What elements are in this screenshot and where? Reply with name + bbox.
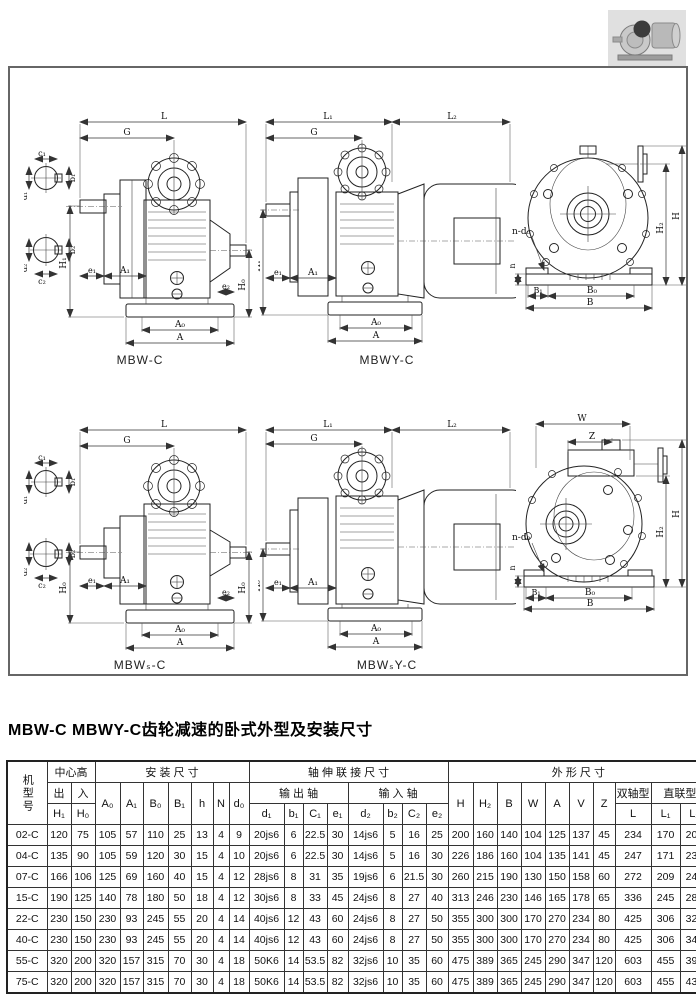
table-cell: 300 (497, 909, 521, 930)
table-cell: 15-C (7, 888, 47, 909)
table-cell: 455 (651, 972, 680, 994)
table-cell: 15 (191, 867, 213, 888)
table-cell: 260 (448, 867, 473, 888)
table-cell: 320 (47, 972, 71, 994)
table-cell: 340 (680, 930, 696, 951)
table-cell: 178 (569, 888, 593, 909)
table-cell: 21.5 (402, 867, 426, 888)
col-d2: d₂ (348, 804, 383, 825)
dim-label-G: G (310, 128, 317, 138)
table-cell: 290 (545, 951, 569, 972)
col-out: 出 (47, 783, 71, 804)
table-cell: 30 (191, 951, 213, 972)
colgroup-outline: 外 形 尺 寸 (448, 761, 696, 783)
table-cell: 230 (497, 888, 521, 909)
table-cell: 140 (95, 888, 120, 909)
table-cell: 10 (383, 972, 402, 994)
col-model: 机型号 (7, 761, 47, 825)
dimension-table: 机型号 中心高 安 装 尺 寸 轴 伸 联 接 尺 寸 外 形 尺 寸 出 入 … (6, 760, 696, 994)
diagram-mbwy-c: L₁ L₂ G H₁ e₁ A₁ A₀ (258, 108, 516, 367)
table-cell: 603 (615, 972, 651, 994)
table-cell: 475 (448, 972, 473, 994)
table-cell: 306 (651, 909, 680, 930)
mbwy-c-drawing: L₁ L₂ G H₁ e₁ A₁ A₀ (258, 108, 516, 351)
table-cell: 170 (651, 825, 680, 846)
table-cell: 105 (95, 825, 120, 846)
dim-label-H0-right: H₀ (238, 582, 248, 594)
col-b1: B₁ (168, 783, 191, 825)
table-cell: 320 (95, 972, 120, 994)
table-cell: 04-C (7, 846, 47, 867)
table-cell: 19js6 (348, 867, 383, 888)
table-cell: 125 (71, 888, 95, 909)
dim-label-H2: H₂ (656, 222, 666, 234)
shaft-section-input: c₂ b₂ d₂ (24, 538, 77, 590)
table-cell: 80 (593, 909, 615, 930)
table-cell: 313 (448, 888, 473, 909)
table-cell: 22.5 (303, 825, 327, 846)
table-cell: 50 (426, 930, 448, 951)
table-cell: 246 (473, 888, 497, 909)
table-cell: 02-C (7, 825, 47, 846)
table-cell: 78 (120, 888, 143, 909)
table-cell: 30 (327, 846, 348, 867)
table-cell: 6 (284, 846, 303, 867)
table-cell: 65 (593, 888, 615, 909)
mbw-c-dimensions: L G H₁ H₀ e₁ A₁ e₂ (59, 112, 252, 345)
table-cell: 75-C (7, 972, 47, 994)
table-cell: 69 (120, 867, 143, 888)
dim-label-B: B (587, 599, 594, 609)
table-cell: 20 (191, 909, 213, 930)
dim-label-d2: d₂ (24, 264, 29, 272)
table-cell: 8 (383, 909, 402, 930)
mbws-c-dimensions: L G H₀ H₀ e₁ A₁ e₂ (59, 420, 252, 650)
table-cell: 22.5 (303, 846, 327, 867)
table-cell: 30 (426, 867, 448, 888)
table-cell: 50K6 (249, 972, 284, 994)
mbwy-c-dimensions: L₁ L₂ G H₁ e₁ A₁ A₀ (258, 112, 510, 343)
table-cell: 6 (383, 867, 402, 888)
dim-label-B1: B₁ (531, 588, 540, 597)
dim-label-H2: H₂ (656, 526, 666, 538)
table-cell: 10 (229, 846, 249, 867)
dim-label-b2: b₂ (68, 550, 77, 558)
table-cell: 18 (229, 972, 249, 994)
table-cell: 20js6 (249, 846, 284, 867)
col-W: W (521, 783, 545, 825)
table-cell: 272 (615, 867, 651, 888)
table-header: 机型号 中心高 安 装 尺 寸 轴 伸 联 接 尺 寸 外 形 尺 寸 出 入 … (7, 761, 696, 825)
table-cell: 300 (473, 909, 497, 930)
table-cell: 336 (615, 888, 651, 909)
col-L1: L₁ (651, 804, 680, 825)
table-cell: 60 (426, 951, 448, 972)
dim-label-A0: A₀ (174, 625, 185, 635)
dim-label-B: B (587, 298, 594, 308)
col-in: 入 (71, 783, 95, 804)
table-cell: 425 (615, 930, 651, 951)
table-cell: 18 (229, 951, 249, 972)
table-cell: 320 (680, 909, 696, 930)
table-cell: 12 (284, 909, 303, 930)
dim-label-d1: d₁ (24, 192, 29, 200)
table-cell: 60 (426, 972, 448, 994)
table-cell: 125 (95, 867, 120, 888)
dim-label-L: L (161, 420, 167, 430)
table-cell: 27 (402, 930, 426, 951)
shaft-section-output: c₁ b₁ d₁ (24, 453, 77, 504)
table-cell: 8 (284, 867, 303, 888)
table-cell: 12 (284, 930, 303, 951)
dim-label-c2: c₂ (38, 277, 46, 286)
table-cell: 186 (473, 846, 497, 867)
table-cell: 245 (680, 867, 696, 888)
table-cell: 32js6 (348, 951, 383, 972)
table-cell: 16 (402, 846, 426, 867)
table-cell: 125 (545, 825, 569, 846)
table-row: 75-C320200320157315703041850K61453.58232… (7, 972, 696, 994)
table-cell: 07-C (7, 867, 47, 888)
front-view-drawing: H H₂ n-d₀ h B₁ B₀ B (510, 124, 694, 324)
caption-mbwy-c: MBWY-C (258, 353, 516, 367)
dim-label-e1: e₁ (88, 576, 96, 585)
table-cell: 60 (327, 930, 348, 951)
table-cell: 10 (383, 951, 402, 972)
dim-label-L2: L₂ (447, 112, 457, 122)
table-cell: 130 (521, 867, 545, 888)
table-cell: 24js6 (348, 888, 383, 909)
colgroup-output-shaft: 输 出 轴 (249, 783, 348, 804)
front-view-wz-drawing: W Z H H₂ n-d₀ h B₁ (510, 412, 694, 622)
table-cell: 13 (191, 825, 213, 846)
col-d1: d₁ (249, 804, 284, 825)
table-cell: 315 (143, 972, 168, 994)
table-cell: 4 (213, 825, 229, 846)
table-cell: 45 (593, 846, 615, 867)
dim-label-A: A (372, 637, 380, 647)
dim-label-L2: L₂ (447, 420, 457, 430)
table-cell: 45 (327, 888, 348, 909)
table-cell: 15 (191, 846, 213, 867)
table-cell: 157 (120, 972, 143, 994)
table-cell: 209 (651, 867, 680, 888)
col-c1: C₁ (303, 804, 327, 825)
table-cell: 395 (680, 951, 696, 972)
table-cell: 14js6 (348, 825, 383, 846)
table-cell: 425 (615, 909, 651, 930)
table-cell: 40 (426, 888, 448, 909)
table-cell: 14 (284, 951, 303, 972)
table-cell: 245 (143, 909, 168, 930)
table-cell: 93 (120, 909, 143, 930)
table-cell: 270 (545, 909, 569, 930)
dim-label-H: H (672, 212, 682, 220)
dim-label-H1: H₁ (59, 257, 69, 268)
col-Z: Z (593, 783, 615, 825)
table-cell: 4 (213, 909, 229, 930)
table-cell: 170 (521, 909, 545, 930)
dim-label-G: G (123, 436, 130, 446)
col-e2: e₂ (426, 804, 448, 825)
table-cell: 247 (615, 846, 651, 867)
col-c2: C₂ (402, 804, 426, 825)
mbwsy-c-drawing: L₁ L₂ G H₀ e₁ A₁ A₀ (258, 416, 516, 656)
dim-label-A0: A₀ (370, 624, 381, 634)
dim-label-c1: c₁ (38, 149, 46, 158)
dim-label-e1: e₁ (274, 578, 282, 587)
table-cell: 70 (168, 972, 191, 994)
table-cell: 50K6 (249, 951, 284, 972)
table-cell: 14js6 (348, 846, 383, 867)
table-cell: 245 (143, 930, 168, 951)
table-cell: 82 (327, 951, 348, 972)
table-cell: 80 (593, 930, 615, 951)
table-cell: 603 (615, 951, 651, 972)
table-cell: 14 (284, 972, 303, 994)
table-cell: 35 (327, 867, 348, 888)
table-cell: 171 (651, 846, 680, 867)
colgroup-center-height: 中心高 (47, 761, 95, 783)
table-cell: 200 (448, 825, 473, 846)
col-A: A (545, 783, 569, 825)
table-cell: 160 (143, 867, 168, 888)
diagram-front-view-bottom: W Z H H₂ n-d₀ h B₁ (510, 412, 694, 622)
table-cell: 4 (213, 930, 229, 951)
table-cell: 59 (120, 846, 143, 867)
table-cell: 320 (95, 951, 120, 972)
reducer-side-view (66, 154, 252, 318)
table-cell: 230 (47, 930, 71, 951)
table-cell: 365 (497, 951, 521, 972)
dim-label-H1: H₁ (258, 260, 263, 271)
table-cell: 235 (680, 846, 696, 867)
dim-label-G: G (123, 128, 130, 138)
table-cell: 4 (213, 846, 229, 867)
table-cell: 230 (95, 930, 120, 951)
table-cell: 435 (680, 972, 696, 994)
table-cell: 234 (569, 930, 593, 951)
dim-label-c2: c₂ (38, 581, 46, 590)
table-cell: 245 (521, 951, 545, 972)
catalog-page: c₁ b₁ d₁ c₂ b₂ d₂ (0, 0, 696, 1000)
dim-label-L1: L₁ (323, 420, 333, 430)
table-cell: 160 (497, 846, 521, 867)
table-cell: 347 (569, 972, 593, 994)
table-cell: 8 (383, 888, 402, 909)
col-h: h (191, 783, 213, 825)
table-cell: 120 (593, 972, 615, 994)
table-cell: 4 (213, 888, 229, 909)
dim-label-A: A (176, 333, 184, 343)
col-V: V (569, 783, 593, 825)
col-d0: d₀ (229, 783, 249, 825)
table-cell: 158 (569, 867, 593, 888)
table-cell: 290 (545, 972, 569, 994)
col-H2: H₂ (473, 783, 497, 825)
table-cell: 8 (284, 888, 303, 909)
table-cell: 43 (303, 930, 327, 951)
table-cell: 25 (168, 825, 191, 846)
dim-label-H: H (672, 510, 682, 518)
dim-label-b1: b₁ (68, 174, 77, 182)
dim-label-H0: H₀ (238, 279, 248, 291)
table-cell: 347 (569, 951, 593, 972)
table-cell: 455 (651, 951, 680, 972)
motor-reducer-side-view (260, 448, 516, 621)
dim-label-b1: b₁ (68, 478, 77, 486)
table-cell: 14 (229, 909, 249, 930)
table-cell: 190 (47, 888, 71, 909)
table-cell: 200 (680, 825, 696, 846)
table-cell: 300 (497, 930, 521, 951)
table-cell: 45 (593, 825, 615, 846)
table-cell: 75 (71, 825, 95, 846)
diagram-mbw-c: c₁ b₁ d₁ c₂ b₂ d₂ (24, 108, 256, 367)
col-b0: B₀ (143, 783, 168, 825)
dim-label-h: h (510, 263, 517, 268)
dim-label-c1: c₁ (38, 453, 46, 462)
motor-reducer-side-view (260, 144, 516, 315)
colgroup-install: 安 装 尺 寸 (95, 761, 249, 783)
dim-label-d1: d₁ (24, 496, 29, 504)
table-cell: 40js6 (249, 909, 284, 930)
table-cell: 104 (521, 825, 545, 846)
table-cell: 20js6 (249, 825, 284, 846)
diagram-front-view-top: H H₂ n-d₀ h B₁ B₀ B (510, 124, 694, 324)
table-cell: 30 (168, 846, 191, 867)
col-L2: L₂ (680, 804, 696, 825)
table-cell: 70 (168, 951, 191, 972)
mbws-c-drawing: c₁ b₁ d₁ c₂ b₂ d₂ (24, 416, 256, 656)
table-cell: 50 (168, 888, 191, 909)
table-cell: 270 (545, 930, 569, 951)
table-cell: 166 (47, 867, 71, 888)
table-cell: 137 (569, 825, 593, 846)
table-body: 02-C120751055711025134920js6622.53014js6… (7, 825, 696, 994)
table-cell: 140 (497, 825, 521, 846)
table-cell: 150 (71, 909, 95, 930)
table-cell: 106 (71, 867, 95, 888)
product-photo-art (608, 10, 686, 66)
col-e1: e₁ (327, 804, 348, 825)
dim-label-A1: A₁ (119, 266, 130, 276)
table-cell: 120 (47, 825, 71, 846)
mbwsy-c-dimensions: L₁ L₂ G H₀ e₁ A₁ A₀ (258, 420, 510, 649)
table-cell: 60 (327, 909, 348, 930)
dim-label-Z: Z (589, 432, 595, 442)
table-cell: 60 (593, 867, 615, 888)
table-cell: 230 (95, 909, 120, 930)
table-cell: 40 (168, 867, 191, 888)
caption-mbws-c: MBWₛ-C (24, 658, 256, 672)
table-cell: 30 (327, 825, 348, 846)
table-cell: 105 (95, 846, 120, 867)
table-cell: 355 (448, 930, 473, 951)
table-cell: 475 (448, 951, 473, 972)
table-cell: 315 (143, 951, 168, 972)
table-cell: 55-C (7, 951, 47, 972)
table-cell: 20 (191, 930, 213, 951)
drawing-frame: c₁ b₁ d₁ c₂ b₂ d₂ (8, 66, 688, 676)
dim-label-A1: A₁ (119, 576, 130, 586)
table-cell: 389 (473, 951, 497, 972)
colgroup-input-shaft: 输 入 轴 (348, 783, 448, 804)
table-row: 07-C16610612569160401541228js68313519js6… (7, 867, 696, 888)
table-cell: 200 (71, 972, 95, 994)
table-cell: 245 (651, 888, 680, 909)
diagram-mbws-c: c₁ b₁ d₁ c₂ b₂ d₂ (24, 416, 256, 672)
table-cell: 82 (327, 972, 348, 994)
table-cell: 90 (71, 846, 95, 867)
table-cell: 53.5 (303, 972, 327, 994)
table-cell: 50 (426, 909, 448, 930)
dim-label-L1: L₁ (323, 112, 333, 122)
table-row: 04-C1359010559120301541020js6622.53014js… (7, 846, 696, 867)
table-cell: 24js6 (348, 930, 383, 951)
dim-label-e1: e₁ (274, 268, 282, 277)
table-cell: 120 (143, 846, 168, 867)
table-cell: 93 (120, 930, 143, 951)
table-cell: 165 (545, 888, 569, 909)
col-b2-key: b₂ (383, 804, 402, 825)
table-cell: 35 (402, 972, 426, 994)
table-cell: 306 (651, 930, 680, 951)
table-cell: 146 (521, 888, 545, 909)
table-cell: 245 (521, 972, 545, 994)
col-n: N (213, 783, 229, 825)
table-cell: 135 (545, 846, 569, 867)
product-photo (608, 10, 686, 66)
table-cell: 32js6 (348, 972, 383, 994)
page-title: MBW-C MBWY-C齿轮减速的卧式外型及安装尺寸 (8, 716, 373, 740)
dim-label-A: A (176, 638, 184, 648)
table-cell: 230 (47, 909, 71, 930)
table-cell: 14 (229, 930, 249, 951)
col-H: H (448, 783, 473, 825)
table-cell: 55 (168, 909, 191, 930)
table-cell: 28js6 (249, 867, 284, 888)
dim-label-b2: b₂ (68, 246, 77, 254)
table-cell: 57 (120, 825, 143, 846)
table-cell: 200 (71, 951, 95, 972)
dim-label-H0-left: H₀ (59, 582, 69, 594)
table-cell: 9 (229, 825, 249, 846)
table-cell: 300 (473, 930, 497, 951)
dim-label-A: A (372, 331, 380, 341)
table-cell: 55 (168, 930, 191, 951)
dim-label-H0: H₀ (258, 580, 263, 592)
table-cell: 226 (448, 846, 473, 867)
table-cell: 30 (191, 972, 213, 994)
dim-label-A1: A₁ (307, 268, 318, 278)
front-view-wz-dimensions: W Z H H₂ n-d₀ h B₁ (510, 414, 686, 611)
dim-label-B1: B₁ (533, 286, 542, 295)
dim-label-W: W (577, 414, 587, 424)
table-cell: 389 (473, 972, 497, 994)
dim-label-h: h (510, 565, 517, 570)
col-B: B (497, 783, 521, 825)
table-cell: 40js6 (249, 930, 284, 951)
table-cell: 320 (47, 951, 71, 972)
caption-mbw-c: MBW-C (24, 353, 256, 367)
table-cell: 160 (473, 825, 497, 846)
table-cell: 6 (284, 825, 303, 846)
table-cell: 35 (402, 951, 426, 972)
dim-label-B0: B₀ (585, 588, 596, 598)
colgroup-shaft: 轴 伸 联 接 尺 寸 (249, 761, 448, 783)
table-cell: 8 (383, 930, 402, 951)
